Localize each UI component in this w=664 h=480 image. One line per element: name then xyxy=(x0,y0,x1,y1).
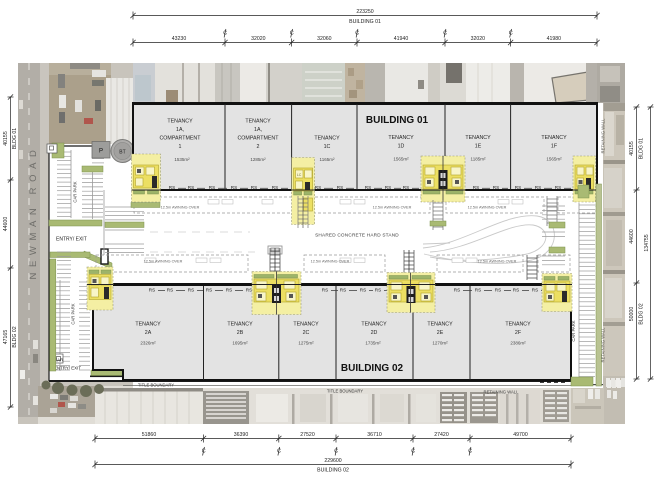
svg-text:RS: RS xyxy=(475,288,481,293)
svg-text:1695m²: 1695m² xyxy=(232,341,248,346)
svg-text:50000: 50000 xyxy=(629,307,635,322)
svg-text:51860: 51860 xyxy=(142,432,157,438)
svg-text:1270m²: 1270m² xyxy=(432,341,448,346)
svg-text:RS: RS xyxy=(385,185,391,190)
svg-text:RETAINING WALL: RETAINING WALL xyxy=(484,390,520,395)
svg-text:1165m²: 1165m² xyxy=(320,157,335,162)
svg-text:2386m²: 2386m² xyxy=(510,341,526,346)
svg-text:1565m²: 1565m² xyxy=(393,157,409,162)
svg-text:2D: 2D xyxy=(371,330,378,336)
svg-text:32060: 32060 xyxy=(317,36,332,42)
svg-text:TENANCY: TENANCY xyxy=(361,322,387,328)
svg-text:CAR PARK: CAR PARK xyxy=(571,320,576,341)
svg-text:TENANCY: TENANCY xyxy=(167,119,193,125)
svg-text:TENANCY: TENANCY xyxy=(245,119,271,125)
svg-text:RS: RS xyxy=(169,185,175,190)
svg-text:BT: BT xyxy=(119,149,125,155)
svg-text:COMPARTMENT: COMPARTMENT xyxy=(159,136,201,142)
svg-text:12.5m AWNING OVER: 12.5m AWNING OVER xyxy=(468,206,507,210)
svg-text:P: P xyxy=(99,149,103,155)
svg-text:1285m²: 1285m² xyxy=(250,157,266,162)
svg-text:223250: 223250 xyxy=(356,9,373,15)
svg-text:49700: 49700 xyxy=(513,432,528,438)
svg-text:41980: 41980 xyxy=(547,36,562,42)
svg-text:1185m²: 1185m² xyxy=(471,157,486,162)
svg-text:RS: RS xyxy=(493,185,499,190)
svg-text:RETAINING WALL: RETAINING WALL xyxy=(601,327,606,363)
svg-text:TENANCY: TENANCY xyxy=(427,322,453,328)
svg-text:ENTRY/ EXIT: ENTRY/ EXIT xyxy=(54,366,81,371)
svg-text:RS: RS xyxy=(337,185,343,190)
svg-text:47165: 47165 xyxy=(3,330,9,345)
svg-text:RS: RS xyxy=(206,288,212,293)
svg-text:1C: 1C xyxy=(324,144,331,150)
svg-text:RS: RS xyxy=(226,288,232,293)
svg-text:LC: LC xyxy=(297,173,302,177)
svg-text:CAR PARK: CAR PARK xyxy=(73,181,78,202)
svg-text:1E: 1E xyxy=(475,144,482,150)
svg-text:RS: RS xyxy=(515,185,521,190)
svg-text:1D: 1D xyxy=(398,144,405,150)
svg-text:BLDG 01: BLDG 01 xyxy=(12,128,18,149)
svg-text:BUILDING 01: BUILDING 01 xyxy=(366,115,429,126)
svg-text:RS: RS xyxy=(231,185,237,190)
svg-text:12.5m AWNING OVER: 12.5m AWNING OVER xyxy=(373,206,412,210)
svg-text:2326m²: 2326m² xyxy=(140,341,156,346)
svg-text:43230: 43230 xyxy=(172,36,187,42)
svg-text:RS: RS xyxy=(188,288,194,293)
svg-text:RS: RS xyxy=(322,288,328,293)
svg-text:2E: 2E xyxy=(437,330,444,336)
svg-text:44600: 44600 xyxy=(629,229,635,244)
svg-text:1275m²: 1275m² xyxy=(298,341,314,346)
svg-text:2F: 2F xyxy=(515,330,522,336)
svg-text:BUILDING 02: BUILDING 02 xyxy=(341,363,404,374)
svg-text:1535m²: 1535m² xyxy=(174,157,190,162)
svg-text:RS: RS xyxy=(473,185,479,190)
svg-text:ENTRY/ EXIT: ENTRY/ EXIT xyxy=(56,237,87,243)
svg-text:BLDG 01: BLDG 01 xyxy=(639,138,645,159)
svg-text:TENANCY: TENANCY xyxy=(227,322,253,328)
svg-text:RS: RS xyxy=(495,288,501,293)
svg-text:40155: 40155 xyxy=(629,141,635,156)
svg-text:32020: 32020 xyxy=(471,36,486,42)
svg-text:RS: RS xyxy=(209,185,215,190)
svg-text:TITLE BOUNDARY: TITLE BOUNDARY xyxy=(138,383,174,388)
svg-text:RS: RS xyxy=(360,288,366,293)
svg-text:BUILDING 02: BUILDING 02 xyxy=(317,468,349,474)
svg-text:12.5m AWNING OVER: 12.5m AWNING OVER xyxy=(478,260,517,264)
svg-text:RS: RS xyxy=(532,288,538,293)
svg-text:12.5m AWNING OVER: 12.5m AWNING OVER xyxy=(311,260,350,264)
svg-text:TENANCY: TENANCY xyxy=(135,322,161,328)
svg-text:1A,: 1A, xyxy=(254,127,262,133)
svg-text:RS: RS xyxy=(246,288,252,293)
svg-text:RS: RS xyxy=(454,288,460,293)
svg-text:RS: RS xyxy=(555,185,561,190)
svg-text:TENANCY: TENANCY xyxy=(505,322,531,328)
svg-text:RS: RS xyxy=(375,288,381,293)
svg-text:32020: 32020 xyxy=(251,36,266,42)
svg-text:27420: 27420 xyxy=(434,432,449,438)
svg-text:1: 1 xyxy=(179,144,182,150)
svg-text:RS: RS xyxy=(535,185,541,190)
svg-text:40155: 40155 xyxy=(3,131,9,146)
svg-text:RETAINING WALL: RETAINING WALL xyxy=(601,118,606,154)
svg-text:RS: RS xyxy=(340,288,346,293)
svg-text:RS: RS xyxy=(149,288,155,293)
svg-text:229600: 229600 xyxy=(324,458,341,464)
svg-text:RS: RS xyxy=(167,288,173,293)
svg-text:2A: 2A xyxy=(145,330,152,336)
svg-text:1F: 1F xyxy=(551,144,558,150)
svg-text:12.5m AWNING OVER: 12.5m AWNING OVER xyxy=(161,206,200,210)
svg-text:RS: RS xyxy=(315,185,321,190)
svg-text:134755: 134755 xyxy=(644,234,650,251)
svg-text:2: 2 xyxy=(257,144,260,150)
svg-text:TENANCY: TENANCY xyxy=(541,135,567,141)
svg-text:12.5m AWNING OVER: 12.5m AWNING OVER xyxy=(144,260,183,264)
svg-text:44600: 44600 xyxy=(3,217,9,232)
svg-text:TENANCY: TENANCY xyxy=(388,135,414,141)
svg-text:COMPARTMENT: COMPARTMENT xyxy=(237,136,279,142)
svg-text:NEWMAN ROAD: NEWMAN ROAD xyxy=(28,145,39,280)
svg-text:CAR PARK: CAR PARK xyxy=(71,303,76,324)
svg-text:2B: 2B xyxy=(237,330,244,336)
svg-text:RS: RS xyxy=(403,185,409,190)
svg-text:1565m²: 1565m² xyxy=(546,157,562,162)
svg-text:RS: RS xyxy=(251,185,257,190)
svg-text:RS: RS xyxy=(272,185,278,190)
svg-text:1A,: 1A, xyxy=(176,127,184,133)
svg-text:1735m²: 1735m² xyxy=(365,341,381,346)
svg-text:TENANCY: TENANCY xyxy=(293,322,319,328)
svg-text:41940: 41940 xyxy=(394,36,409,42)
svg-text:RS: RS xyxy=(188,185,194,190)
svg-text:RS: RS xyxy=(365,185,371,190)
svg-text:TITLE BOUNDARY: TITLE BOUNDARY xyxy=(327,389,363,394)
svg-text:36390: 36390 xyxy=(234,432,249,438)
svg-text:TENANCY: TENANCY xyxy=(465,135,491,141)
svg-text:36710: 36710 xyxy=(367,432,382,438)
svg-text:BLDG 02: BLDG 02 xyxy=(639,303,645,324)
svg-text:2C: 2C xyxy=(303,330,310,336)
svg-text:BUILDING 01: BUILDING 01 xyxy=(349,19,381,25)
svg-text:SHARED CONCRETE HARD STAND: SHARED CONCRETE HARD STAND xyxy=(315,233,399,238)
svg-text:TENANCY: TENANCY xyxy=(314,136,340,142)
svg-text:27520: 27520 xyxy=(300,432,315,438)
svg-text:RS: RS xyxy=(513,288,519,293)
svg-text:BLDG 02: BLDG 02 xyxy=(12,326,18,347)
